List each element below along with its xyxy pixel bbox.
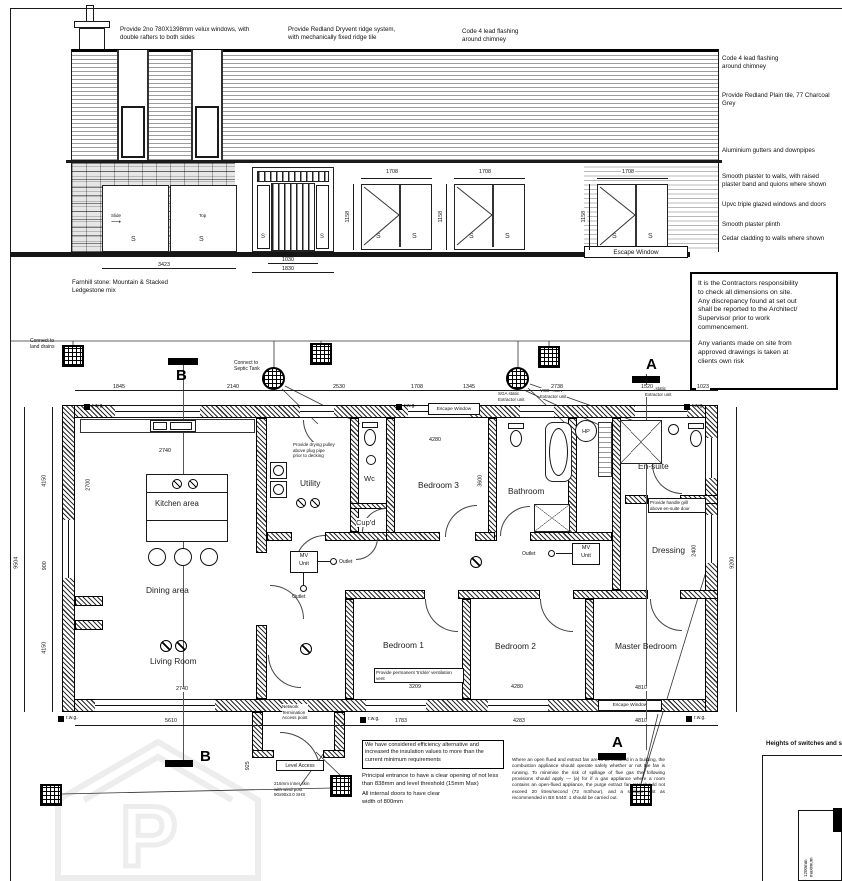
door-arc	[268, 655, 301, 688]
door-side-panel: S	[316, 185, 329, 249]
door-arc	[445, 505, 477, 537]
toilet-cistern	[508, 423, 524, 429]
porch-top-slats	[257, 171, 329, 182]
wall-bedrooms-top	[680, 590, 718, 599]
room-label-living: Living Room	[150, 656, 197, 666]
hp-cylinder: HP	[575, 420, 597, 442]
drain-symbol	[310, 343, 332, 365]
chimney-flue	[86, 5, 94, 22]
dryer-icon	[270, 481, 287, 498]
note-roof-tiles: Provide Redland Plain tile, 77 Charcoal …	[722, 92, 838, 108]
escape-window-label-top: Escape Window	[428, 403, 480, 415]
dim-left: 900	[43, 560, 48, 571]
drying-pulley-note: Provide drying pulley above plug pipe pr…	[293, 442, 335, 459]
dim-line-bottom	[75, 725, 718, 726]
drawing-sheet: { "drawing": { "elevation": { "note_velu…	[0, 0, 842, 881]
section-marker-b-top: B	[176, 367, 187, 384]
stool-circle	[174, 548, 192, 566]
sash-label: S	[505, 233, 510, 240]
rwg-icon	[686, 716, 692, 722]
dim-left: 4150	[42, 474, 47, 488]
outlet-icon	[300, 585, 307, 592]
basin	[366, 455, 376, 465]
sash-label: S	[376, 233, 381, 240]
wall-stub	[75, 596, 103, 606]
escape-window-label-bottom: Escape Window	[598, 700, 662, 711]
note-ridge: Provide Redland Dryvent ridge system, wi…	[288, 26, 428, 42]
rwg-icon	[58, 716, 64, 722]
rwg-icon	[84, 404, 90, 410]
dim-bottom: 4283	[512, 719, 526, 724]
note-upvc: Upvc triple glazed windows and doors	[722, 201, 838, 209]
dim-window-height: 1158	[346, 210, 351, 224]
dim-window-width: 1708	[621, 170, 635, 175]
contractor-note-para1: It is the Contractors responsibility to …	[698, 280, 830, 333]
toilet-cistern	[688, 423, 704, 429]
mv-unit: MV Unit	[572, 543, 600, 565]
dim-bed3-height: 3600	[478, 474, 483, 488]
note-gutters: Aluminium gutters and downpipes	[722, 147, 838, 155]
dim-line	[446, 184, 447, 250]
rwg-label: r.w.g.	[66, 715, 78, 721]
dim-door-outer: 1830	[281, 267, 295, 272]
bath-inner	[549, 428, 568, 476]
dim-line-right	[736, 407, 737, 712]
velux-window	[121, 106, 145, 158]
wall-hall-top	[475, 532, 495, 541]
room-label-bedroom1: Bedroom 1	[383, 640, 424, 650]
slide-arrow-icon: ⟶	[111, 218, 121, 226]
dim-top: 2530	[332, 385, 346, 390]
connect-septic-label: Connect to Septic Tank	[234, 360, 260, 372]
note-lead-flashing-right: Code 4 lead flashing around chimney	[722, 55, 838, 71]
drainer	[170, 422, 192, 430]
toilet-bowl	[690, 430, 702, 447]
internal-doors-note: All internal doors to have clear width o…	[362, 791, 492, 806]
airing-shelves	[598, 422, 612, 477]
rwg-icon	[684, 404, 690, 410]
ceiling-symbol-icon	[175, 640, 187, 652]
dim-top: 1845	[112, 385, 126, 390]
basin	[668, 424, 679, 435]
appliance-symbol-icon	[296, 498, 306, 508]
wall-hall-top	[530, 532, 612, 541]
dim-bottom: 5610	[164, 719, 178, 724]
front-door-slats	[271, 183, 315, 251]
ceiling-symbol-icon	[470, 556, 482, 568]
velux-window	[195, 106, 219, 158]
door-arc	[356, 538, 378, 560]
sash-label: S	[648, 233, 653, 240]
wall-bedrooms-top	[458, 590, 540, 599]
sash-label: S	[131, 236, 136, 243]
wind-post-note: 215mm inner skin with wind post 90x90x3.…	[274, 781, 310, 798]
efficiency-note: We have considered efficiency alternativ…	[365, 742, 501, 764]
level-access-label: Level Access	[276, 760, 324, 771]
window-dressing	[705, 515, 718, 563]
dim-line-top	[75, 390, 718, 391]
island-divider	[146, 492, 228, 493]
rwg-icon	[396, 404, 402, 410]
mv-outlet-line	[318, 561, 330, 562]
drain-symbol	[538, 346, 560, 368]
note-velux: Provide 2no 780X1398mm velux windows, wi…	[120, 26, 270, 42]
section-marker-bar	[165, 760, 193, 767]
dim-top: 1520	[640, 385, 654, 390]
appliance-symbol-icon	[310, 498, 320, 508]
window-bathroom	[520, 405, 554, 418]
note-stone: Farnhill stone: Mountain & Stacked Ledge…	[72, 279, 232, 295]
sash-label: S	[261, 234, 265, 240]
contractor-note-para2: Any variants made on site from approved …	[698, 340, 830, 366]
dim-window-width: 1708	[385, 170, 399, 175]
note-lead-flashing-top: Code 4 lead flashing around chimney	[462, 28, 562, 44]
dim-kitchen-height: 2700	[86, 478, 91, 492]
wall-hall-living	[256, 625, 267, 699]
elevation-right-edge	[718, 49, 719, 252]
top-hung-label: Top	[199, 213, 206, 219]
stool-circle	[148, 548, 166, 566]
mv-outlet-line	[556, 553, 572, 554]
section-marker-bar	[632, 376, 660, 383]
wall-wc-bed3	[386, 418, 395, 541]
outlet-icon	[330, 558, 337, 565]
septic-connection-symbol	[506, 367, 529, 390]
roof-tiles	[72, 49, 718, 161]
connect-land-drains-label: Connect to land drains	[30, 338, 54, 350]
dim-top: 1023	[696, 385, 710, 390]
room-label-wc: Wc	[364, 474, 375, 483]
wall-bedrooms-top	[345, 590, 425, 599]
door-arc	[540, 599, 573, 632]
dim-left-total: 9504	[14, 556, 19, 570]
room-label-dining: Dining area	[146, 585, 189, 595]
switch-heights-title: Heights of switches and sockets	[766, 740, 842, 748]
appliance-symbol-icon	[188, 479, 198, 489]
door-arc	[425, 599, 458, 632]
rwg-label: r.w.g.	[368, 716, 380, 722]
dim-window-width: 1708	[478, 170, 492, 175]
window-ensuite-top	[635, 405, 687, 418]
shower-tray	[534, 504, 570, 532]
wall-bed1-left	[345, 599, 354, 699]
dim-bed1-width: 3209	[408, 685, 422, 690]
dim-stone-windows: 3423	[157, 263, 171, 268]
window-bed2	[488, 699, 548, 712]
open-flue-note: Where an open flued and extract fan are …	[512, 757, 665, 801]
rwg-label: r.w.g.	[694, 715, 706, 721]
room-label-bedroom3: Bedroom 3	[418, 480, 459, 490]
door-arc	[270, 585, 304, 619]
rwg-label: r.w.g.	[404, 403, 416, 409]
contractor-note-box: It is the Contractors responsibility to …	[690, 272, 838, 390]
network-termination-note: Network Termination Access point	[282, 704, 308, 721]
room-label-dressing: Dressing	[652, 545, 685, 555]
wall-porch-return	[323, 750, 345, 758]
titleblock-black-bar	[833, 808, 842, 832]
ceiling-symbol-icon	[300, 643, 312, 655]
dim-window-height: 1158	[582, 210, 587, 224]
window-bed1	[366, 699, 426, 712]
dim-door-inner: 1030	[281, 258, 295, 263]
note-plinth: Smooth plaster plinth	[722, 221, 838, 229]
ensuite-shower	[620, 420, 662, 464]
window-dining	[62, 520, 75, 578]
casement-glyph	[598, 185, 666, 247]
dim-line-left	[24, 407, 25, 712]
section-marker-a-top: A	[646, 356, 657, 373]
dim-top: 1708	[410, 385, 424, 390]
stone-window-left: ⟶ Slide S	[102, 185, 169, 252]
chimney-cap	[74, 21, 110, 28]
section-marker-a-bottom: A	[612, 734, 623, 751]
dim-line	[597, 178, 668, 179]
dim-bed2-width: 4280	[510, 685, 524, 690]
door-utility-back	[300, 405, 334, 418]
slide-label: Slide	[111, 213, 121, 219]
window-ensuite-right	[705, 438, 718, 478]
dim-line-left	[52, 407, 53, 712]
note-plaster: Smooth plaster to walls, with raised pla…	[722, 173, 838, 189]
appliance-symbol-icon	[172, 479, 182, 489]
dim-living-width: 2740	[175, 687, 189, 692]
titleblock-line	[762, 755, 842, 756]
sash-label: S	[612, 233, 617, 240]
wall-stub	[75, 620, 103, 630]
wall-hall-top	[386, 532, 440, 541]
rwg-label: r.w.g.	[92, 403, 104, 409]
wall-porch-return	[252, 750, 274, 758]
dim-line	[589, 184, 590, 250]
dim-top: 1345	[462, 385, 476, 390]
drain-symbol	[330, 775, 352, 797]
chimney-stack	[79, 28, 105, 50]
window-kitchen	[115, 405, 200, 418]
stool-circle	[200, 548, 218, 566]
dim-bottom: 4810	[634, 719, 648, 724]
dim-bottom: 1783	[394, 719, 408, 724]
sink-bowl	[153, 422, 167, 430]
dim-left: 4150	[42, 641, 47, 655]
casement-glyph	[362, 185, 430, 247]
extractor-sga-label: SGA static Extractor unit	[498, 391, 525, 402]
toilet-cistern	[362, 422, 378, 428]
elevation-window-1: S S	[361, 184, 432, 250]
handrail-note: Provide handle grill above en-suite door	[648, 498, 706, 513]
room-label-ensuite: En-suite	[638, 461, 669, 471]
dim-bed3-width: 4280	[428, 438, 442, 443]
sheet-border-top	[10, 8, 842, 9]
door-side-panel: S	[257, 185, 270, 249]
room-label-utility: Utility	[300, 478, 320, 488]
window-living	[95, 699, 215, 712]
dim-dressing-height: 2400	[692, 544, 697, 558]
wall-bedrooms-top	[573, 590, 648, 599]
trickle-vent-note: Provide permanent 'trickle' ventilation …	[374, 668, 464, 683]
dim-line	[454, 178, 525, 179]
island-divider	[146, 520, 228, 521]
wall-bed3-bath	[488, 418, 497, 541]
wall-bed1-bed2	[462, 599, 471, 699]
room-label-bathroom: Bathroom	[508, 486, 544, 496]
wall-bed2-master	[585, 599, 594, 699]
svg-text:P: P	[120, 789, 177, 881]
dim-top: 2738	[550, 385, 564, 390]
casement-glyph	[455, 185, 523, 247]
efficiency-note-box: We have considered efficiency alternativ…	[362, 740, 504, 769]
note-cedar: Cedar cladding to walls where shown	[722, 235, 838, 243]
wall-utility-wc	[350, 418, 359, 532]
section-marker-bar	[168, 358, 198, 365]
outlet-label: Outlet	[522, 551, 535, 557]
land-drain-symbol	[62, 345, 84, 367]
dim-porch: 925	[246, 760, 251, 771]
toilet-bowl	[510, 430, 522, 447]
switch-height-dim: 1200mm maximum	[803, 819, 814, 877]
room-label-cupd: Cup'd	[356, 518, 375, 527]
titleblock-line	[762, 755, 763, 881]
dryer-drum	[273, 484, 284, 495]
wall-utility-divider	[256, 418, 267, 553]
ceiling-symbol-icon	[160, 640, 172, 652]
dim-master-width: 4810	[634, 686, 648, 691]
wall-ensuite-dressing	[625, 495, 648, 504]
sash-label: S	[199, 236, 204, 243]
section-marker-b-bottom: B	[200, 748, 211, 765]
door-arc	[650, 599, 682, 631]
dim-line	[353, 184, 354, 250]
mv-outlet-line	[303, 573, 304, 585]
dim-top: 2140	[226, 385, 240, 390]
sheet-border-left	[10, 8, 11, 881]
door-arc	[500, 506, 530, 536]
toilet-bowl	[364, 429, 376, 446]
sash-label: S	[469, 233, 474, 240]
escape-window-label-elevation: Escape Window	[584, 246, 688, 258]
elevation-window-3: S S	[597, 184, 668, 250]
drain-symbol	[40, 784, 62, 806]
dim-kitchen-width: 2740	[158, 449, 172, 454]
rwg-icon	[360, 717, 366, 723]
sash-label: S	[412, 233, 417, 240]
outlet-label: Outlet	[339, 559, 352, 565]
stone-window-right: Top S	[170, 185, 237, 252]
mv-unit: MV Unit	[290, 551, 318, 573]
outlet-label: Outlet	[292, 594, 305, 600]
room-label-kitchen: Kitchen area	[155, 499, 199, 508]
kitchen-island	[146, 474, 228, 542]
washer-drum	[273, 465, 284, 476]
entrance-note: Principal entrance to have a clear openi…	[362, 773, 512, 788]
room-label-bedroom2: Bedroom 2	[495, 641, 536, 651]
room-label-master: Master Bedroom	[615, 641, 677, 651]
sash-label: S	[320, 234, 324, 240]
washer-icon	[270, 462, 287, 479]
dim-window-height: 1158	[439, 210, 444, 224]
rwg-label: r.w.g.	[692, 403, 704, 409]
elevation-window-2: S S	[454, 184, 525, 250]
dim-line	[361, 178, 432, 179]
wall-utility-bottom	[267, 532, 292, 541]
dim-right-total: 9200	[730, 556, 735, 570]
outlet-icon	[548, 550, 555, 557]
septic-connection-symbol	[262, 367, 285, 390]
